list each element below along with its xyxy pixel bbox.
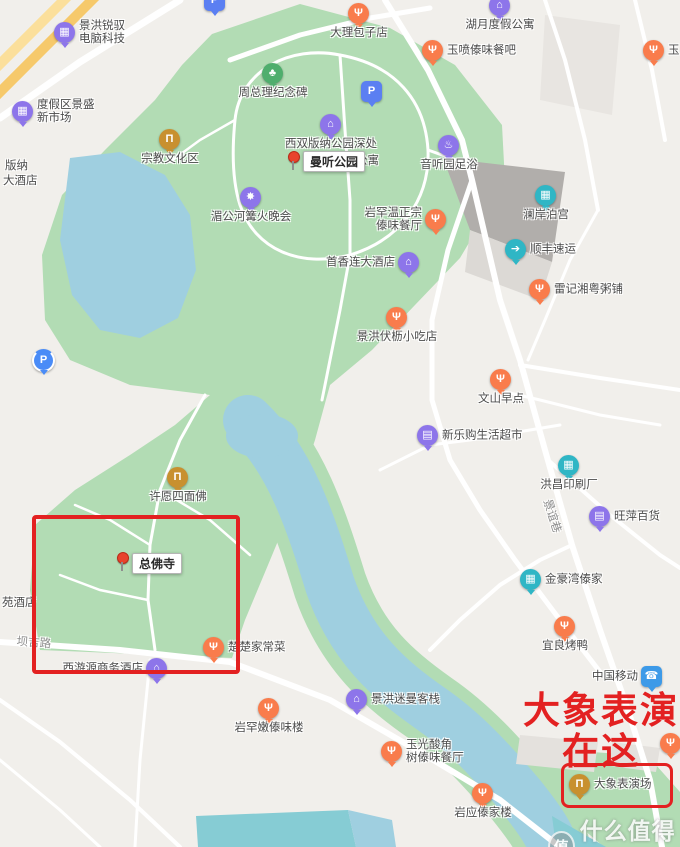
- teal-glyph: ▦: [540, 190, 550, 201]
- food-glyph: Ψ: [649, 45, 658, 56]
- food-glyph: Ψ: [666, 738, 675, 749]
- parkingc-pin-icon[interactable]: P: [32, 349, 55, 372]
- parking-pin-icon[interactable]: P: [361, 81, 382, 102]
- parking-pin-icon[interactable]: P: [204, 0, 225, 11]
- company-glyph: ▦: [17, 106, 27, 117]
- museum-pin-icon[interactable]: Π: [159, 129, 180, 150]
- truck-pin-icon[interactable]: ➔: [505, 239, 526, 260]
- food-glyph: Ψ: [478, 788, 487, 799]
- food-glyph: Ψ: [354, 8, 363, 19]
- food-glyph: Ψ: [209, 642, 218, 653]
- lodge-pin-icon[interactable]: ⌂: [146, 658, 167, 679]
- lodge-pin-icon[interactable]: ⌂: [320, 114, 341, 135]
- museum-glyph: Π: [174, 472, 182, 483]
- food-pin-icon[interactable]: Ψ: [643, 40, 664, 61]
- truck-glyph: ➔: [511, 244, 520, 255]
- teal-glyph: ▦: [525, 574, 535, 585]
- lodge-glyph: ⌂: [353, 694, 360, 705]
- spa-pin-icon[interactable]: ♨: [438, 135, 459, 156]
- shop-glyph: ▤: [422, 430, 432, 441]
- mobile-pin-icon[interactable]: ☎: [641, 666, 662, 687]
- pool: [196, 810, 356, 847]
- museum-glyph: Π: [576, 779, 584, 790]
- lodge-pin-icon[interactable]: ⌂: [346, 689, 367, 710]
- parkingc-glyph: P: [40, 355, 47, 366]
- food-glyph: Ψ: [560, 621, 569, 632]
- attraction-glyph: ✸: [246, 192, 255, 203]
- teal-glyph: ▦: [563, 460, 573, 471]
- food-glyph: Ψ: [496, 374, 505, 385]
- shop-pin-icon[interactable]: ▤: [589, 506, 610, 527]
- teal-pin-icon[interactable]: ▦: [520, 569, 541, 590]
- food-glyph: Ψ: [392, 312, 401, 323]
- lodge-glyph: ⌂: [327, 119, 334, 130]
- building-block: [540, 15, 620, 115]
- lodge-glyph: ⌂: [153, 663, 160, 674]
- lodge-glyph: ⌂: [405, 257, 412, 268]
- food-glyph: Ψ: [428, 45, 437, 56]
- attraction-pin-icon[interactable]: ✸: [240, 187, 261, 208]
- food-pin-icon[interactable]: Ψ: [422, 40, 443, 61]
- food-pin-icon[interactable]: Ψ: [554, 616, 575, 637]
- spa-glyph: ♨: [444, 140, 454, 151]
- map-screenshot: 版纳大酒店苑酒店公寓坝吉路景谊巷 ▦景洪锐驭电脑科技▦度假区景盛新市场Π宗教文化…: [0, 0, 680, 847]
- selected-poi-label[interactable]: 曼听公园: [303, 151, 365, 172]
- teal-pin-icon[interactable]: ▦: [558, 455, 579, 476]
- company-pin-icon[interactable]: ▦: [54, 22, 75, 43]
- teal-pin-icon[interactable]: ▦: [535, 185, 556, 206]
- museum-pin-icon[interactable]: Π: [569, 774, 590, 795]
- company-pin-icon[interactable]: ▦: [12, 101, 33, 122]
- mobile-glyph: ☎: [645, 671, 659, 682]
- food-pin-icon[interactable]: Ψ: [381, 741, 402, 762]
- food-pin-icon[interactable]: Ψ: [490, 369, 511, 390]
- shop-glyph: ▤: [594, 511, 604, 522]
- selected-poi-label[interactable]: 总佛寺: [132, 553, 182, 574]
- food-pin-icon[interactable]: Ψ: [348, 3, 369, 24]
- food-pin-icon[interactable]: Ψ: [425, 209, 446, 230]
- food-pin-icon[interactable]: Ψ: [386, 307, 407, 328]
- lodge-glyph: ⌂: [496, 0, 503, 11]
- parking-glyph: P: [211, 0, 218, 6]
- food-glyph: Ψ: [264, 703, 273, 714]
- monument-pin-icon[interactable]: ♣: [262, 63, 283, 84]
- food-pin-icon[interactable]: Ψ: [660, 733, 680, 754]
- lodge-pin-icon[interactable]: ⌂: [398, 252, 419, 273]
- selected-pushpin-icon[interactable]: [288, 151, 300, 163]
- food-glyph: Ψ: [535, 284, 544, 295]
- shop-pin-icon[interactable]: ▤: [417, 425, 438, 446]
- food-glyph: Ψ: [431, 214, 440, 225]
- museum-pin-icon[interactable]: Π: [167, 467, 188, 488]
- museum-glyph: Π: [166, 134, 174, 145]
- food-pin-icon[interactable]: Ψ: [529, 279, 550, 300]
- food-glyph: Ψ: [387, 746, 396, 757]
- parking-glyph: P: [368, 86, 375, 97]
- company-glyph: ▦: [59, 27, 69, 38]
- food-pin-icon[interactable]: Ψ: [203, 637, 224, 658]
- river-head: [226, 414, 298, 458]
- selected-pushpin-icon[interactable]: [117, 552, 129, 564]
- food-pin-icon[interactable]: Ψ: [258, 698, 279, 719]
- monument-glyph: ♣: [269, 68, 276, 79]
- food-pin-icon[interactable]: Ψ: [472, 783, 493, 804]
